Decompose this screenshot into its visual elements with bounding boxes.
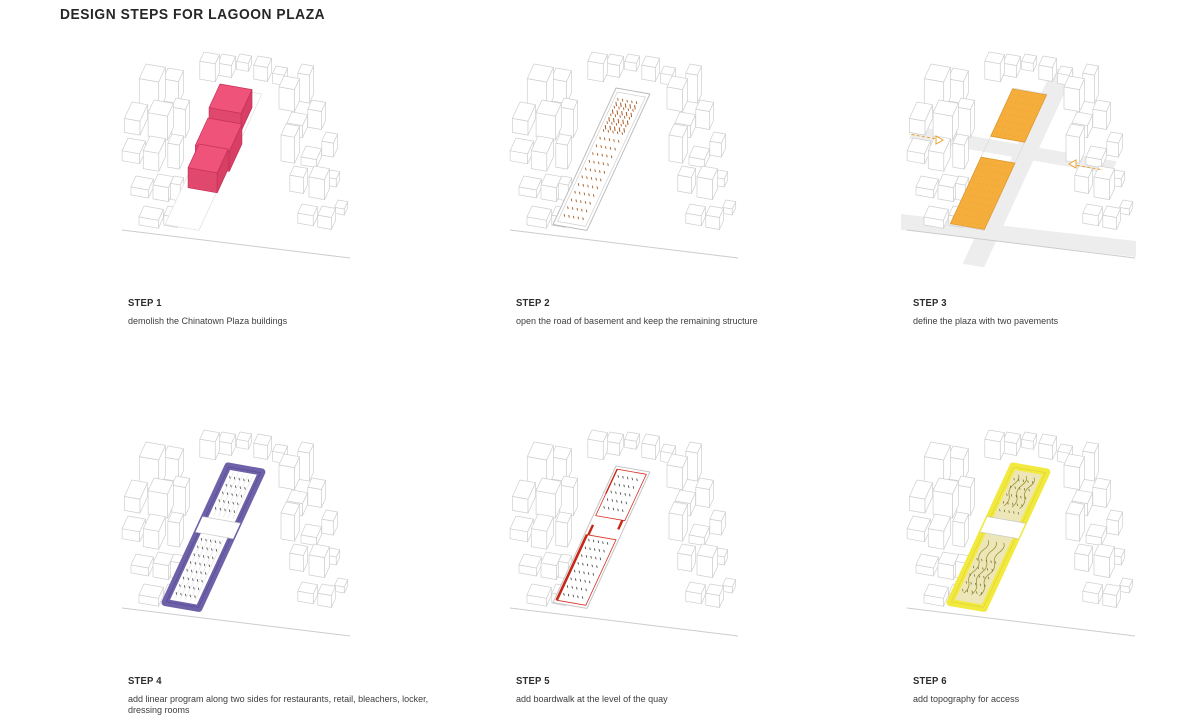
step-4-axonometric (116, 424, 351, 648)
step-2-axonometric (504, 46, 739, 270)
step-6-diagram (901, 424, 1136, 648)
step-4-diagram (116, 424, 351, 648)
step-1-diagram (116, 46, 351, 270)
step-label: STEP 1 (128, 298, 444, 309)
step-1-axonometric (116, 46, 351, 270)
step-label: STEP 5 (516, 676, 832, 687)
step-caption: demolish the Chinatown Plaza buildings (128, 316, 450, 327)
step-3-diagram (901, 46, 1136, 270)
step-3-axonometric (901, 46, 1136, 270)
step-caption: open the road of basement and keep the r… (516, 316, 838, 327)
step-panel-4: STEP 4 add linear program along two side… (116, 424, 461, 716)
step-caption: add topography for access (913, 694, 1200, 705)
step-label: STEP 4 (128, 676, 444, 687)
step-caption: define the plaza with two pavements (913, 316, 1200, 327)
step-panel-6: STEP 6 add topography for access (901, 424, 1200, 705)
step-caption: add boardwalk at the level of the quay (516, 694, 838, 705)
step-2-diagram (504, 46, 739, 270)
step-5-axonometric (504, 424, 739, 648)
step-panel-2: STEP 2 open the road of basement and kee… (504, 46, 849, 327)
page-title: DESIGN STEPS FOR LAGOON PLAZA (60, 6, 325, 23)
step-caption: add linear program along two sides for r… (128, 694, 450, 716)
step-label: STEP 2 (516, 298, 832, 309)
step-panel-1: STEP 1 demolish the Chinatown Plaza buil… (116, 46, 461, 327)
step-panel-3: STEP 3 define the plaza with two pavemen… (901, 46, 1200, 327)
step-6-axonometric (901, 424, 1136, 648)
step-panel-5: STEP 5 add boardwalk at the level of the… (504, 424, 849, 705)
step-label: STEP 6 (913, 676, 1200, 687)
design-steps-page: DESIGN STEPS FOR LAGOON PLAZA STEP 1 dem… (0, 0, 1200, 717)
step-5-diagram (504, 424, 739, 648)
step-label: STEP 3 (913, 298, 1200, 309)
